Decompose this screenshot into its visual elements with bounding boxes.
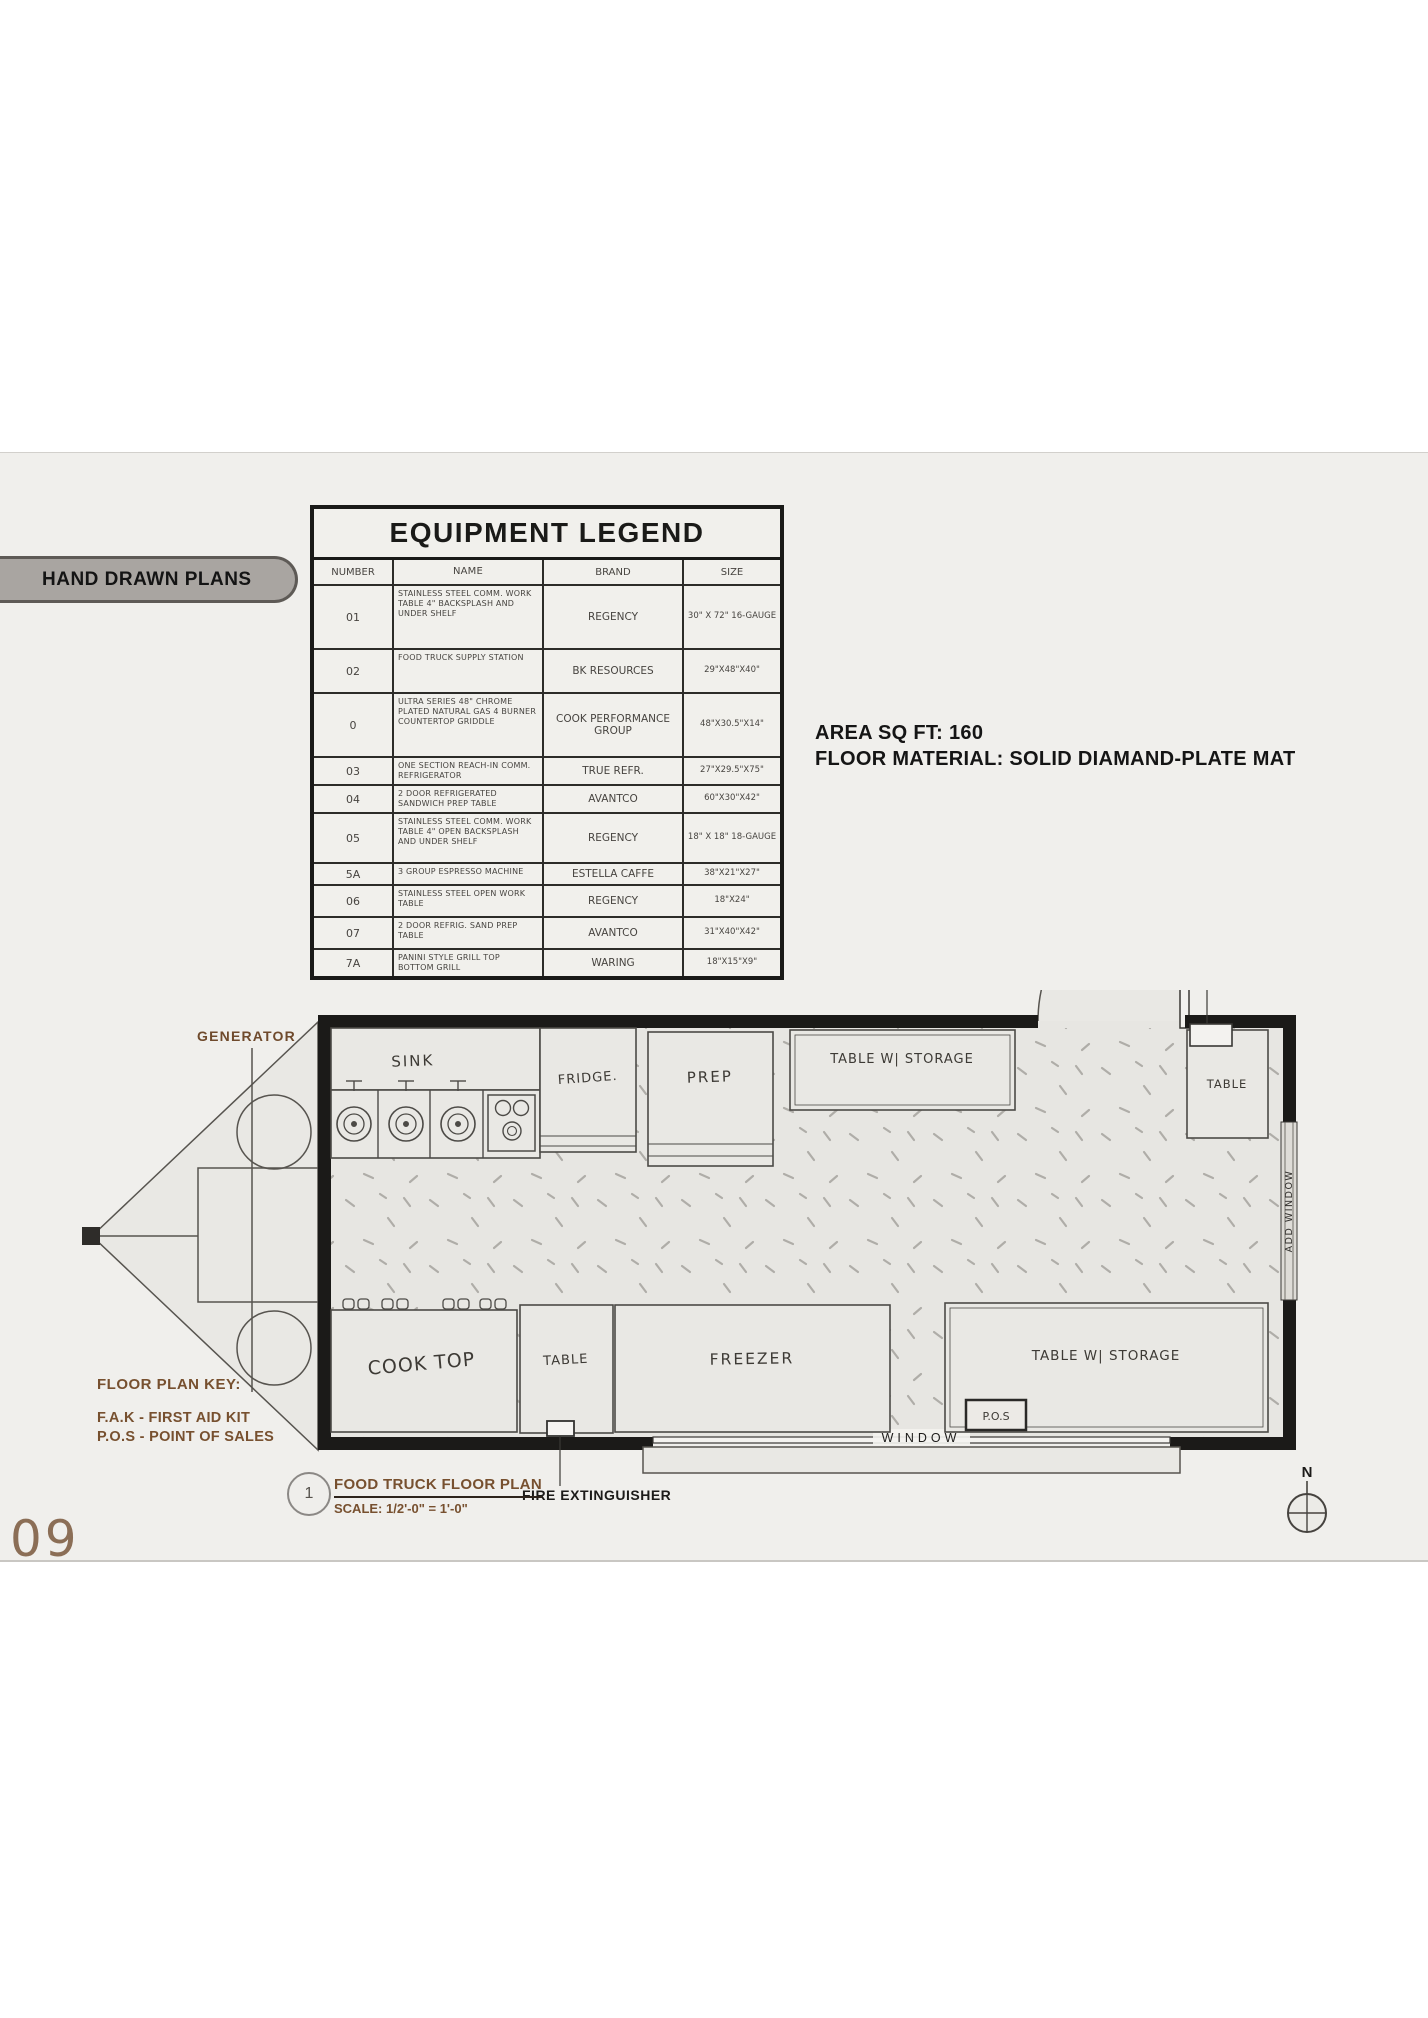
cell-brand: TRUE REFR. <box>544 758 684 784</box>
drawing-number: 1 <box>305 1485 314 1503</box>
cell-name: ULTRA SERIES 48" CHROME PLATED NATURAL G… <box>394 694 544 756</box>
cell-number: 7A <box>314 950 394 976</box>
drawing-title-block: FOOD TRUCK FLOOR PLAN SCALE: 1/2'-0" = 1… <box>334 1476 542 1516</box>
cell-brand: REGENCY <box>544 814 684 862</box>
freezer-label: FREEZER <box>710 1349 795 1368</box>
legend-header-name: NAME <box>394 560 544 584</box>
cell-size: 18" X 18" 18-GAUGE <box>684 814 780 862</box>
table-row: 0 ULTRA SERIES 48" CHROME PLATED NATURAL… <box>314 694 780 758</box>
floor-plan-key-title: FLOOR PLAN KEY: <box>97 1376 274 1393</box>
cell-brand: COOK PERFORMANCE GROUP <box>544 694 684 756</box>
legend-header-size: SIZE <box>684 560 780 584</box>
window-sill <box>643 1447 1180 1473</box>
floor-material-text: FLOOR MATERIAL: SOLID DIAMAND-PLATE MAT <box>815 746 1296 772</box>
key-item-pos: P.O.S - POINT OF SALES <box>97 1428 274 1447</box>
table-top-right-label: TABLE <box>1206 1077 1248 1091</box>
legend-header-number: NUMBER <box>314 560 394 584</box>
cell-size: 48"X30.5"X14" <box>684 694 780 756</box>
table-row: 7A PANINI STYLE GRILL TOP BOTTOM GRILL W… <box>314 950 780 976</box>
cell-name: FOOD TRUCK SUPPLY STATION <box>394 650 544 692</box>
window-label: WINDOW <box>882 1431 961 1445</box>
north-compass: N <box>1288 1464 1326 1532</box>
cell-number: 07 <box>314 918 394 948</box>
fire-extinguisher-label: FIRE EXTINGUISHER <box>522 1487 671 1503</box>
cell-name: 3 GROUP ESPRESSO MACHINE <box>394 864 544 884</box>
cell-number: 0 <box>314 694 394 756</box>
cell-name: 2 DOOR REFRIG. SAND PREP TABLE <box>394 918 544 948</box>
cell-number: 05 <box>314 814 394 862</box>
table-row: 5A 3 GROUP ESPRESSO MACHINE ESTELLA CAFF… <box>314 864 780 886</box>
drawing-scale: SCALE: 1/2'-0" = 1'-0" <box>334 1501 542 1516</box>
cell-size: 18"X24" <box>684 886 780 916</box>
cell-size: 18"X15"X9" <box>684 950 780 976</box>
prep-table: PREP <box>648 1032 773 1166</box>
table-bottom: TABLE <box>520 1305 613 1433</box>
cook-top: COOK TOP <box>331 1299 517 1432</box>
cell-size: 31"X40"X42" <box>684 918 780 948</box>
table-row: 07 2 DOOR REFRIG. SAND PREP TABLE AVANTC… <box>314 918 780 950</box>
table-row: 03 ONE SECTION REACH-IN COMM. REFRIGERAT… <box>314 758 780 786</box>
cell-name: 2 DOOR REFRIGERATED SANDWICH PREP TABLE <box>394 786 544 812</box>
table-row: 02 FOOD TRUCK SUPPLY STATION BK RESOURCE… <box>314 650 780 694</box>
cell-brand: REGENCY <box>544 586 684 648</box>
key-item-fak: F.A.K - FIRST AID KIT <box>97 1409 274 1428</box>
floor-plan-key: FLOOR PLAN KEY: F.A.K - FIRST AID KIT P.… <box>97 1376 274 1447</box>
fridge: FRIDGE. <box>540 1028 636 1152</box>
floor-plan-drawing: ADD WINDOW WINDOW <box>0 990 1428 1578</box>
generator-label: GENERATOR <box>197 1028 296 1044</box>
drawing-title: FOOD TRUCK FLOOR PLAN <box>334 1476 542 1498</box>
cell-name: PANINI STYLE GRILL TOP BOTTOM GRILL <box>394 950 544 976</box>
legend-title: EQUIPMENT LEGEND <box>314 509 780 560</box>
cell-size: 38"X21"X27" <box>684 864 780 884</box>
cell-brand: AVANTCO <box>544 786 684 812</box>
cell-brand: BK RESOURCES <box>544 650 684 692</box>
cell-brand: AVANTCO <box>544 918 684 948</box>
cell-number: 5A <box>314 864 394 884</box>
cell-name: STAINLESS STEEL COMM. WORK TABLE 4" OPEN… <box>394 814 544 862</box>
cell-number: 01 <box>314 586 394 648</box>
sink-area: SINK <box>331 1028 540 1158</box>
add-window-section: ADD WINDOW <box>1281 1122 1297 1300</box>
table-storage-top-label: TABLE W| STORAGE <box>829 1052 974 1067</box>
cell-name: STAINLESS STEEL COMM. WORK TABLE 4" BACK… <box>394 586 544 648</box>
legend-header-brand: BRAND <box>544 560 684 584</box>
legend-header-row: NUMBER NAME BRAND SIZE <box>314 560 780 586</box>
table-bottom-label: TABLE <box>542 1352 589 1369</box>
table-row: 06 STAINLESS STEEL OPEN WORK TABLE REGEN… <box>314 886 780 918</box>
area-info: AREA SQ FT: 160 FLOOR MATERIAL: SOLID DI… <box>815 720 1296 772</box>
equipment-legend-table: EQUIPMENT LEGEND NUMBER NAME BRAND SIZE … <box>310 505 784 980</box>
cell-brand: ESTELLA CAFFE <box>544 864 684 884</box>
cell-brand: WARING <box>544 950 684 976</box>
hand-sink-unit <box>488 1095 535 1151</box>
cell-size: 30" X 72" 16-GAUGE <box>684 586 780 648</box>
cell-brand: REGENCY <box>544 886 684 916</box>
cell-number: 02 <box>314 650 394 692</box>
cell-size: 27"X29.5"X75" <box>684 758 780 784</box>
cell-name: ONE SECTION REACH-IN COMM. REFRIGERATOR <box>394 758 544 784</box>
prep-label: PREP <box>687 1067 734 1087</box>
cell-name: STAINLESS STEEL OPEN WORK TABLE <box>394 886 544 916</box>
section-badge: HAND DRAWN PLANS <box>0 556 298 603</box>
add-window-label: ADD WINDOW <box>1284 1170 1295 1253</box>
pos-label: P.O.S <box>982 1410 1009 1423</box>
cell-size: 29"X48"X40" <box>684 650 780 692</box>
table-storage-top: TABLE W| STORAGE <box>790 1030 1015 1110</box>
portfolio-page: HAND DRAWN PLANS EQUIPMENT LEGEND NUMBER… <box>0 0 1428 2018</box>
table-row: 01 STAINLESS STEEL COMM. WORK TABLE 4" B… <box>314 586 780 650</box>
section-badge-label: HAND DRAWN PLANS <box>42 569 252 591</box>
cell-size: 60"X30"X42" <box>684 786 780 812</box>
table-storage-bottom: TABLE W| STORAGE P.O.S <box>945 1303 1268 1432</box>
freezer: FREEZER <box>615 1305 890 1432</box>
area-sqft-text: AREA SQ FT: 160 <box>815 720 1296 746</box>
cell-number: 04 <box>314 786 394 812</box>
compass-n-label: N <box>1302 1464 1313 1481</box>
drawing-number-bubble: 1 <box>287 1472 331 1516</box>
page-number: 09 <box>10 1510 80 1568</box>
table-storage-bottom-label: TABLE W| STORAGE <box>1031 1348 1181 1364</box>
sink-label: SINK <box>391 1051 435 1070</box>
table-row: 05 STAINLESS STEEL COMM. WORK TABLE 4" O… <box>314 814 780 864</box>
table-row: 04 2 DOOR REFRIGERATED SANDWICH PREP TAB… <box>314 786 780 814</box>
cell-number: 03 <box>314 758 394 784</box>
hitch-coupler <box>82 1227 100 1245</box>
cell-number: 06 <box>314 886 394 916</box>
